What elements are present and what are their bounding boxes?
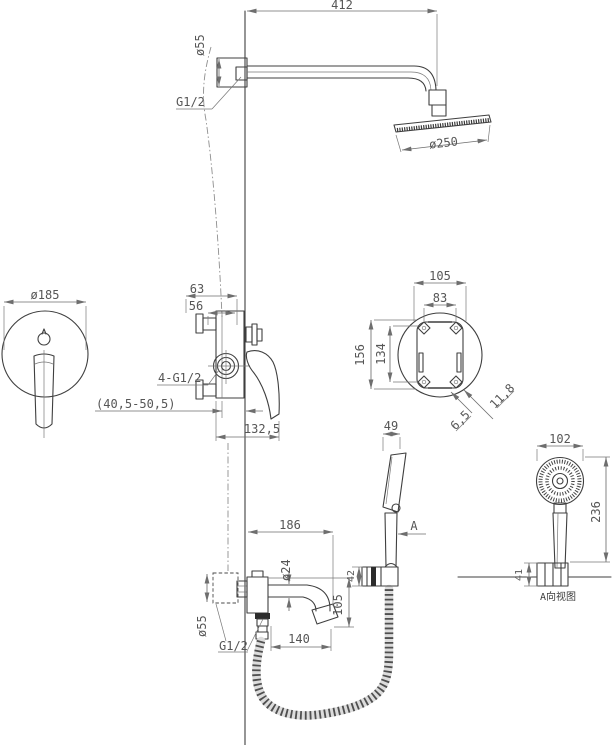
technical-drawing-sheet: 412 ø55 G1/2 ø250 ø185: [0, 0, 615, 745]
dim-spout-reach: 140: [288, 632, 310, 646]
label-view-a: A: [410, 519, 418, 533]
dim-box-corner-offset-a: 11,8: [487, 381, 517, 411]
dim-spout-drop: 105: [331, 594, 345, 616]
dim-box-hole-spacing-h: 105: [429, 269, 451, 283]
label-arm-thread: G1/2: [176, 95, 205, 109]
dim-trim-dia: ø185: [31, 288, 60, 302]
dim-box-height: 134: [374, 343, 388, 365]
dim-valve-b: 56: [189, 299, 203, 313]
dimensions-spout: [207, 532, 354, 652]
dimensions-valve: [95, 296, 279, 441]
shower-arm: [217, 58, 446, 116]
dim-holder-depth: 42: [346, 570, 357, 582]
dim-aview-length: 236: [589, 501, 603, 523]
dim-box-width: 83: [433, 291, 447, 305]
shower-hose: [256, 589, 389, 715]
dim-handshower-width: 49: [384, 419, 398, 433]
tub-spout: [213, 571, 338, 639]
dim-wall-depth-range: (40,5-50,5): [96, 397, 175, 411]
dim-head-dia: ø250: [428, 134, 458, 151]
mixer-trim-plate: [2, 302, 88, 438]
dim-spout-total-reach: 186: [279, 518, 301, 532]
dimensions-box: [371, 283, 514, 431]
dimensions-top: [176, 11, 490, 152]
dim-box-corner-offset-b: 6,5: [448, 408, 473, 433]
dim-aview-head-dia: 102: [549, 432, 571, 446]
shower-system-drawing: 412 ø55 G1/2 ø250 ø185: [0, 0, 615, 745]
label-spout-thread: G1/2: [219, 639, 248, 653]
label-valve-ports: 4-G1/2: [158, 371, 201, 385]
wall-mounting-box: [398, 313, 482, 397]
dim-box-hole-spacing-v: 156: [353, 344, 367, 366]
concealed-pipe-centerline: [204, 47, 228, 571]
dim-spout-dia: ø24: [279, 559, 293, 581]
dim-aview-holder-width: 41: [514, 569, 525, 581]
hand-shower-holder: [362, 564, 398, 587]
dimensions-hand-shower: [352, 434, 426, 586]
caption-view-a: A向视图: [540, 590, 576, 603]
mixer-valve-body: [196, 311, 279, 419]
hand-shower: [383, 453, 406, 567]
dim-spout-flange-dia: ø55: [195, 615, 209, 637]
dim-valve-width: 132,5: [244, 422, 280, 436]
dim-arm-length: 412: [331, 0, 353, 12]
dim-valve-a: 63: [190, 282, 204, 296]
shower-head: [394, 115, 491, 132]
dim-arm-flange-dia: ø55: [193, 34, 207, 56]
